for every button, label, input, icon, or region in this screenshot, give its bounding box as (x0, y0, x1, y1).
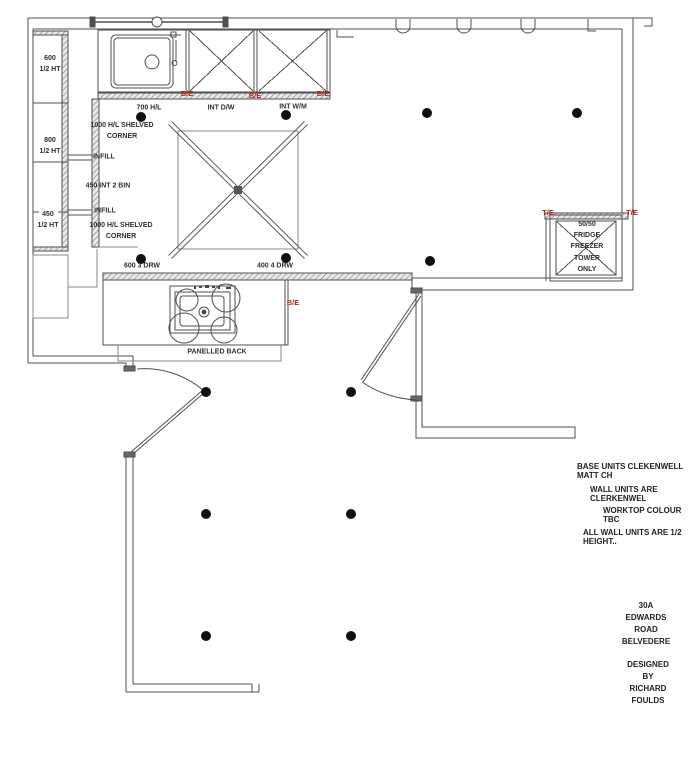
door-lower-left (124, 366, 205, 457)
note-base-units: BASE UNITS CLEKENWELL MATT CH (577, 462, 699, 480)
door-right (361, 294, 421, 400)
tap-icon (167, 32, 181, 66)
label-infill-top: INFILL (93, 151, 115, 162)
be-marker-2: B/E (249, 90, 262, 102)
ceiling-light-dot (422, 108, 432, 118)
ceiling-light-dot (201, 387, 211, 397)
note-wall-height: ALL WALL UNITS ARE 1/2 HEIGHT.. (583, 528, 699, 546)
plan-linework (0, 0, 699, 768)
ceiling-light-dot (346, 387, 356, 397)
note-wall-units: WALL UNITS ARE CLERKENWEL (590, 485, 699, 503)
be-marker-4: B/E (287, 297, 300, 309)
note-worktop: WORKTOP COLOUR TBC (603, 506, 699, 524)
sink-run (98, 30, 330, 99)
ceiling-light-dot (201, 509, 211, 519)
wall-unit-600-label: 600 1/2 HT (39, 53, 60, 75)
ceiling-light-dot (346, 509, 356, 519)
kitchen-floor-plan: 600 1/2 HT 800 1/2 HT 450 1/2 HT 700 H/L… (0, 0, 699, 768)
peninsula-counter (103, 273, 412, 361)
project-address: 30A EDWARDS ROAD BELVEDERE (620, 600, 673, 648)
te-marker-2: T/E (626, 207, 638, 219)
ceiling-light-dot (572, 108, 582, 118)
wall-unit-450-label: 450 1/2 HT (37, 209, 58, 231)
ceiling-light-dot (281, 253, 291, 263)
label-450-bin: 450 INT 2 BIN (86, 180, 131, 191)
oven-hob (169, 284, 240, 343)
label-infill-bottom: INFILL (94, 205, 116, 216)
ceiling-light-dot (136, 254, 146, 264)
window-symbols (90, 17, 596, 37)
ceiling-light-dot (136, 112, 146, 122)
label-panelled-back: PANELLED BACK (187, 346, 246, 357)
wall-unit-800-label: 800 1/2 HT (39, 135, 60, 157)
sink-bowl (111, 35, 173, 88)
island-skylight (169, 122, 308, 259)
interior-walls (411, 278, 633, 438)
ceiling-light-dot (346, 631, 356, 641)
be-marker-3: B/E (317, 88, 330, 100)
be-marker-1: B/E (181, 88, 194, 100)
te-marker-1: T/E (542, 207, 554, 219)
designer-credit: DESIGNED BY RICHARD FOULDS (623, 659, 674, 707)
label-corner-bottom: 1000 H/L SHELVED CORNER (89, 220, 152, 242)
label-corner-top: 1000 H/L SHELVED CORNER (90, 120, 153, 142)
ceiling-light-dot (201, 631, 211, 641)
sink-drain (145, 55, 159, 69)
ceiling-light-dot (281, 110, 291, 120)
label-int-dw: INT D/W (208, 102, 235, 113)
ceiling-light-dot (425, 256, 435, 266)
fridge-freezer-label: 50/50 FRIDGE FREEZER TOWER ONLY (571, 219, 604, 275)
